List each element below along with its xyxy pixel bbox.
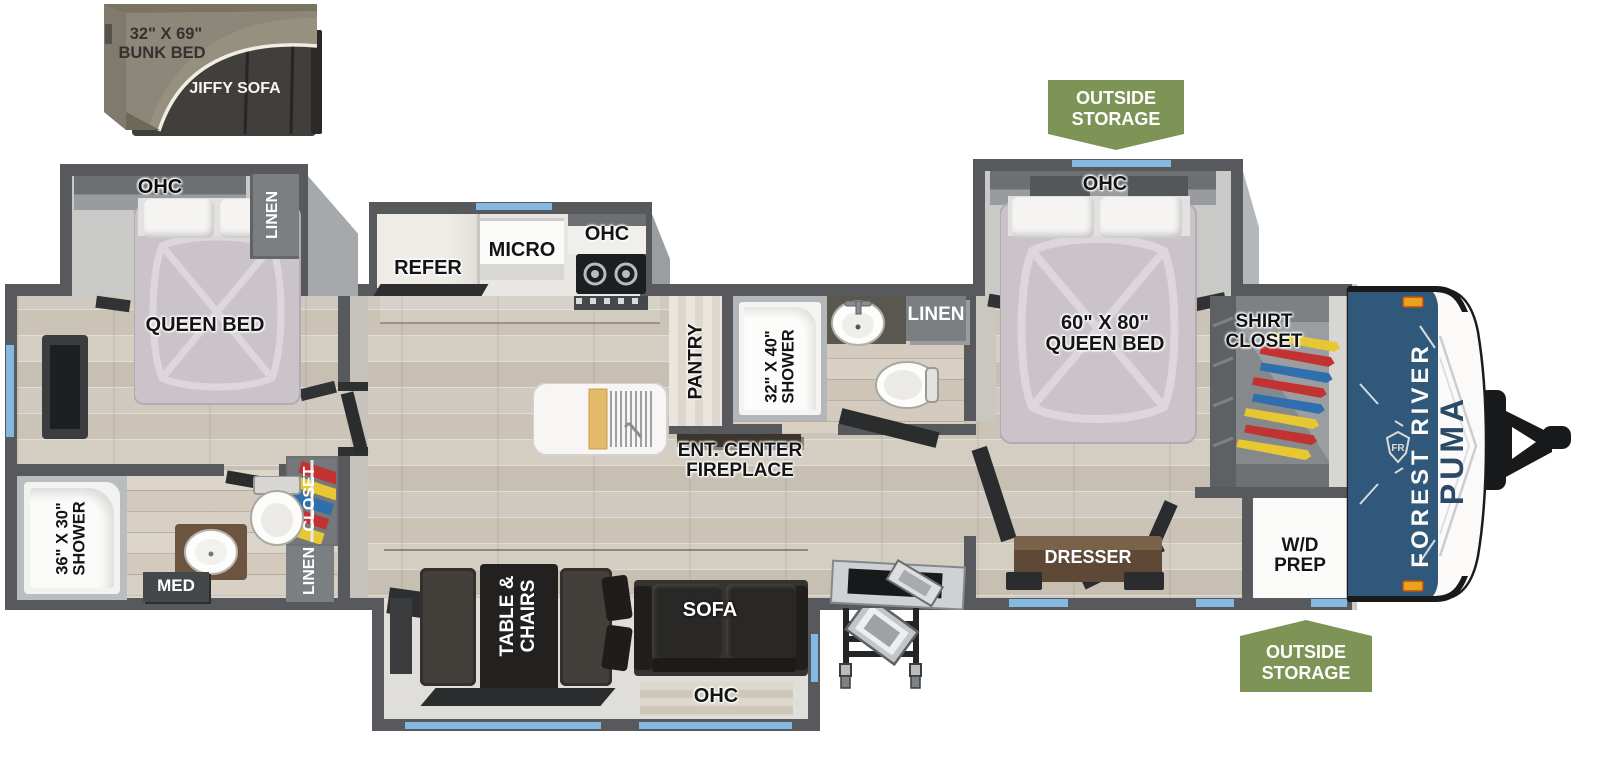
svg-text:JIFFY SOFA: JIFFY SOFA xyxy=(189,80,281,97)
svg-text:BUNK BED: BUNK BED xyxy=(118,44,205,62)
svg-text:STORAGE: STORAGE xyxy=(1262,663,1351,683)
svg-text:OUTSIDE: OUTSIDE xyxy=(1076,88,1156,108)
svg-text:FR: FR xyxy=(1391,443,1405,454)
svg-text:32" X 69": 32" X 69" xyxy=(130,25,203,43)
svg-text:STORAGE: STORAGE xyxy=(1072,109,1161,129)
svg-text:OUTSIDE: OUTSIDE xyxy=(1266,642,1346,662)
